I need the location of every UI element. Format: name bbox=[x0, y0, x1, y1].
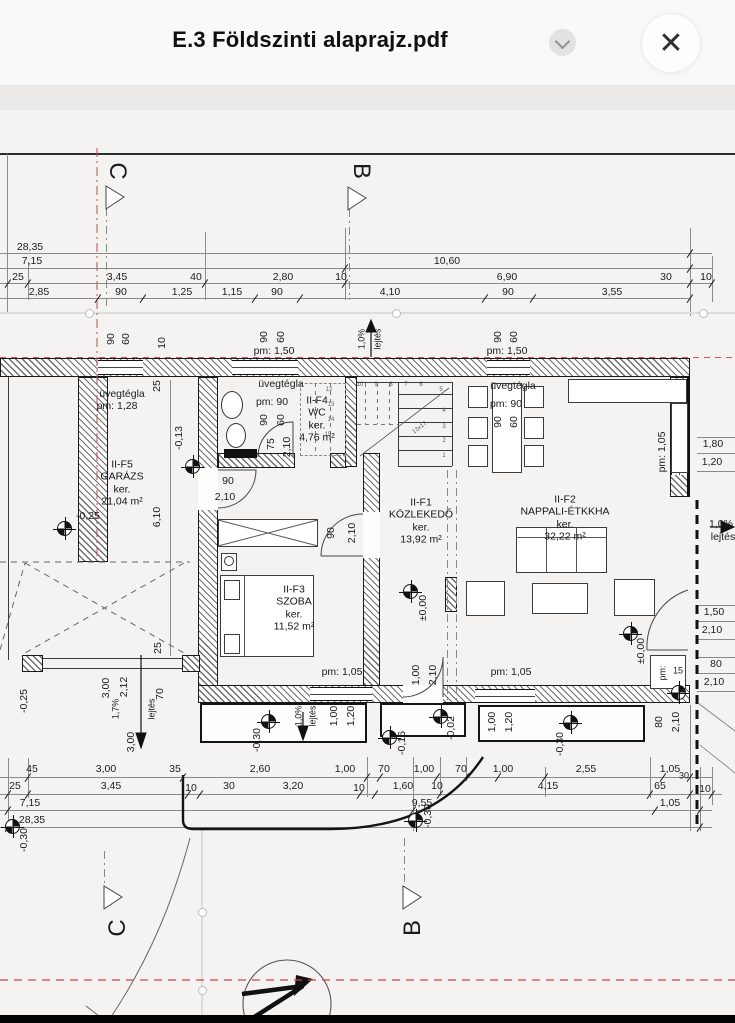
pdf-preview-window: E.3 Földszinti alaprajz.pdf ✕ bbox=[0, 0, 735, 1023]
room-label: II-F4 WC ker. 4,76 m² bbox=[299, 394, 335, 444]
room-label: II-F3 SZOBA ker. 11,52 m² bbox=[274, 583, 315, 633]
header-bar: E.3 Földszinti alaprajz.pdf ✕ bbox=[0, 0, 735, 86]
chevron-down-icon bbox=[555, 34, 571, 50]
header-shadow-strip bbox=[0, 86, 735, 110]
room-label: II-F5 GARÁZS ker. 21,04 m² bbox=[100, 458, 143, 508]
room-labels-layer: II-F5 GARÁZS ker. 21,04 m²II-F4 WC ker. … bbox=[0, 0, 735, 1023]
filename-dropdown-button[interactable] bbox=[549, 29, 576, 56]
page-title: E.3 Földszinti alaprajz.pdf bbox=[0, 27, 620, 53]
room-label: II-F2 NAPPALI-ÉTKKHA ker. 32,22 m² bbox=[520, 493, 609, 543]
pdf-page-floorplan[interactable]: 28,357,1510,60253,45402,80106,9030102,85… bbox=[0, 0, 735, 1023]
close-icon: ✕ bbox=[658, 26, 683, 61]
bottom-black-bar bbox=[0, 1015, 735, 1023]
room-label: II-F1 KÖZLEKEDŐ ker. 13,92 m² bbox=[389, 496, 453, 546]
close-button[interactable]: ✕ bbox=[641, 13, 701, 73]
